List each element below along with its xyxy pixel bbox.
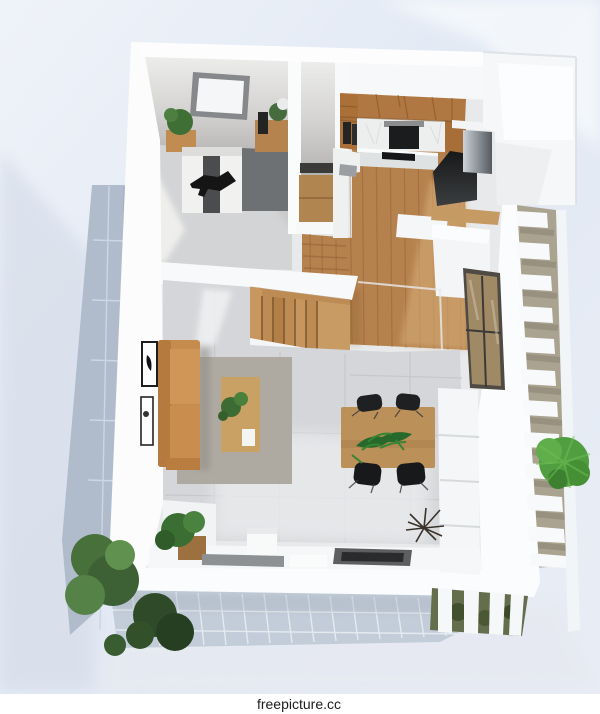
svg-text:freepicture.cc: freepicture.cc xyxy=(257,696,341,712)
